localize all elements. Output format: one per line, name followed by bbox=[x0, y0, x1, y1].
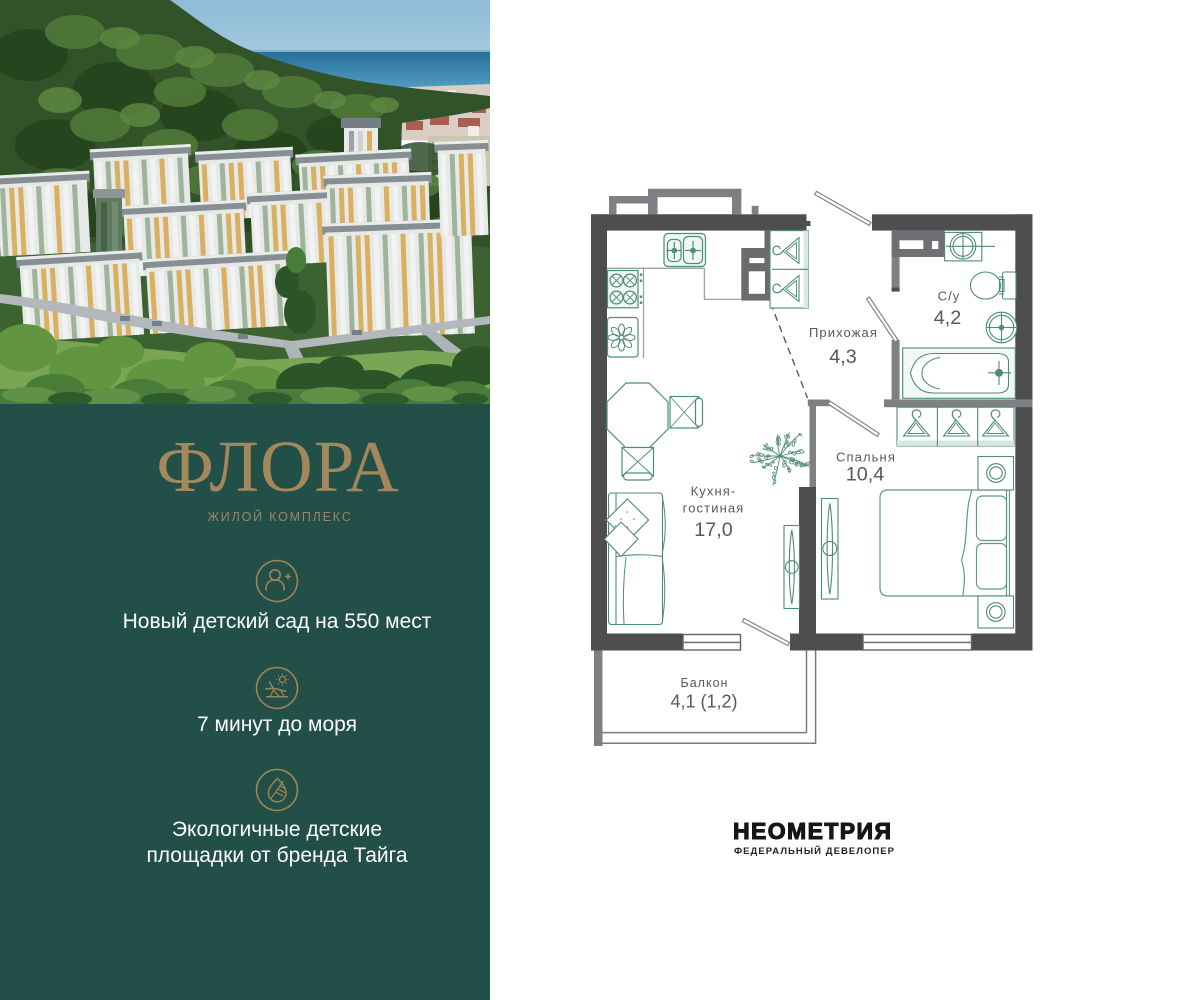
svg-text:гостиная: гостиная bbox=[683, 501, 745, 516]
svg-text:Прихожая: Прихожая bbox=[809, 325, 878, 340]
svg-text:Балкон: Балкон bbox=[681, 676, 729, 690]
svg-text:10,4: 10,4 bbox=[846, 464, 885, 486]
svg-text:4,1 (1,2): 4,1 (1,2) bbox=[670, 692, 737, 712]
svg-text:С/у: С/у bbox=[938, 289, 961, 304]
svg-text:17,0: 17,0 bbox=[694, 519, 733, 541]
svg-text:4,3: 4,3 bbox=[829, 346, 857, 368]
svg-text:4,2: 4,2 bbox=[934, 307, 962, 329]
svg-text:Спальня: Спальня bbox=[836, 450, 896, 465]
svg-text:Кухня-: Кухня- bbox=[691, 484, 737, 499]
